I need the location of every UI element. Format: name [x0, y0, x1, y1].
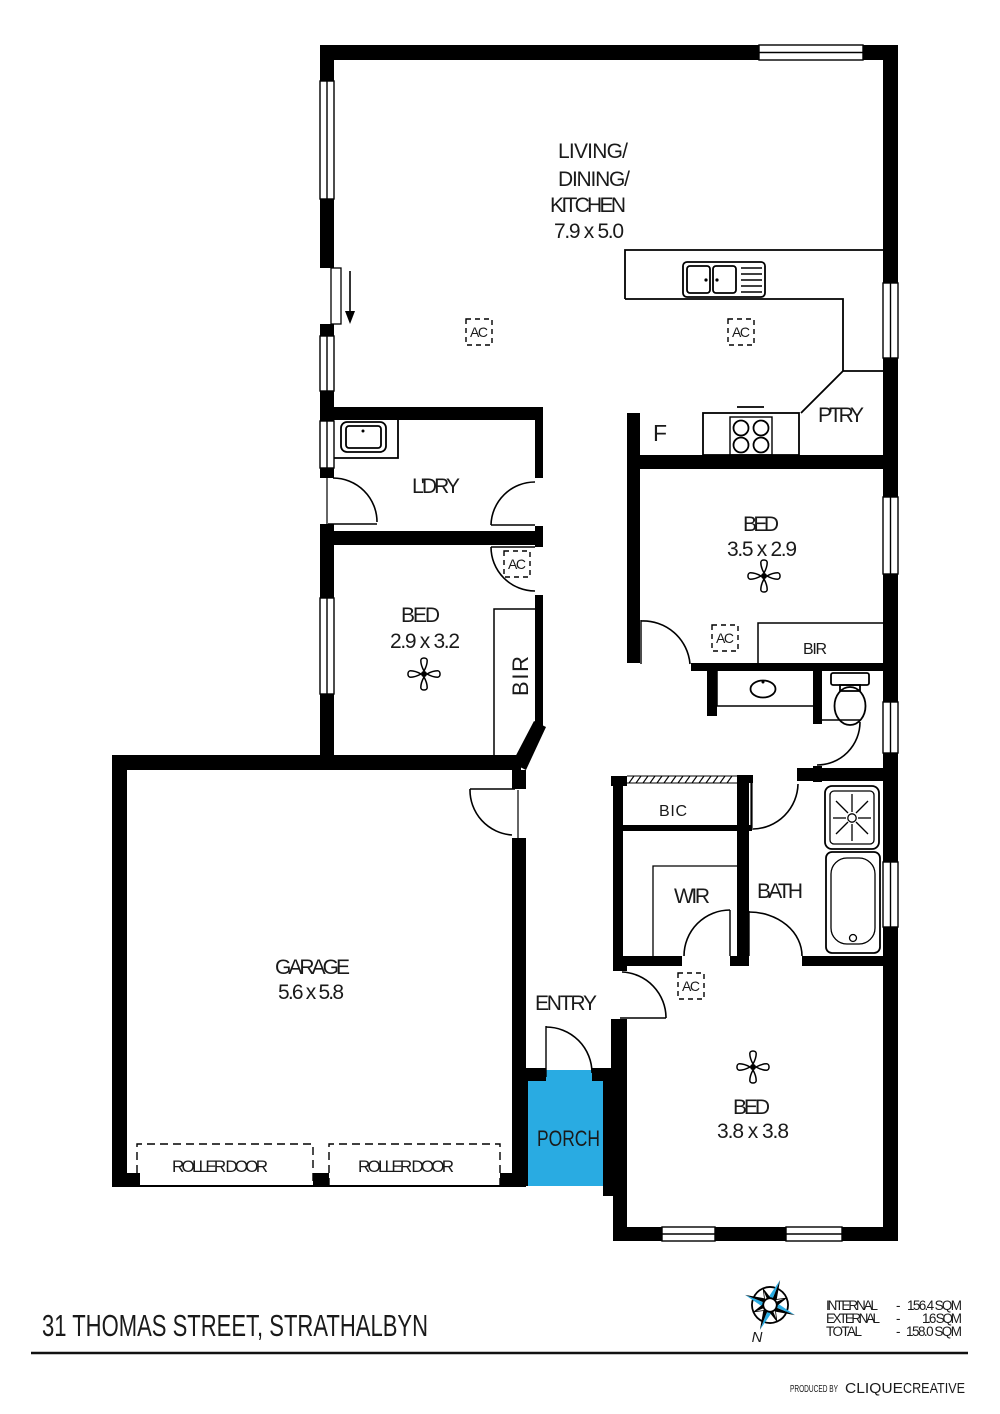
- svg-text:-: -: [896, 1324, 901, 1339]
- svg-text:N: N: [752, 1329, 763, 1346]
- svg-text:BIC: BIC: [659, 803, 687, 820]
- svg-text:KITCHEN: KITCHEN: [550, 194, 626, 217]
- svg-text:BIR: BIR: [803, 641, 827, 658]
- svg-text:WIR: WIR: [674, 885, 710, 908]
- svg-text:ROLLER DOOR: ROLLER DOOR: [358, 1157, 454, 1176]
- svg-text:AC: AC: [682, 978, 700, 994]
- svg-text:BED: BED: [733, 1096, 770, 1119]
- svg-text:3.8 x 3.8: 3.8 x 3.8: [717, 1120, 789, 1143]
- svg-text:CREATIVE: CREATIVE: [903, 1380, 965, 1397]
- svg-text:BIR: BIR: [508, 656, 533, 696]
- svg-text:2.9 x 3.2: 2.9 x 3.2: [390, 630, 460, 653]
- svg-text:BED: BED: [401, 604, 440, 627]
- svg-text:CLIQUE: CLIQUE: [845, 1380, 903, 1397]
- svg-text:GARAGE: GARAGE: [275, 956, 350, 979]
- svg-text:F: F: [653, 420, 667, 446]
- svg-text:ROLLER DOOR: ROLLER DOOR: [172, 1157, 268, 1176]
- svg-text:AC: AC: [716, 630, 734, 646]
- svg-text:31 THOMAS STREET, STRATHALBYN: 31 THOMAS STREET, STRATHALBYN: [42, 1308, 428, 1343]
- svg-text:AC: AC: [508, 556, 526, 572]
- svg-text:PRODUCED BY: PRODUCED BY: [790, 1384, 838, 1395]
- svg-text:3.5 x 2.9: 3.5 x 2.9: [727, 538, 797, 561]
- svg-text:BATH: BATH: [757, 880, 803, 903]
- svg-text:BED: BED: [743, 513, 779, 536]
- svg-text:7.9 x 5.0: 7.9 x 5.0: [554, 220, 624, 243]
- svg-text:LIVING/: LIVING/: [558, 140, 628, 163]
- svg-text:DINING/: DINING/: [558, 168, 630, 191]
- svg-text:L'DRY: L'DRY: [412, 475, 460, 498]
- svg-text:PORCH: PORCH: [537, 1126, 600, 1151]
- svg-text:ENTRY: ENTRY: [535, 992, 597, 1015]
- svg-text:5.6 x 5.8: 5.6 x 5.8: [278, 981, 344, 1004]
- svg-text:P'TRY: P'TRY: [818, 404, 864, 427]
- svg-text:AC: AC: [732, 324, 750, 340]
- svg-text:158.0 SQM: 158.0 SQM: [906, 1324, 962, 1339]
- svg-text:TOTAL: TOTAL: [826, 1324, 862, 1339]
- svg-text:AC: AC: [470, 324, 488, 340]
